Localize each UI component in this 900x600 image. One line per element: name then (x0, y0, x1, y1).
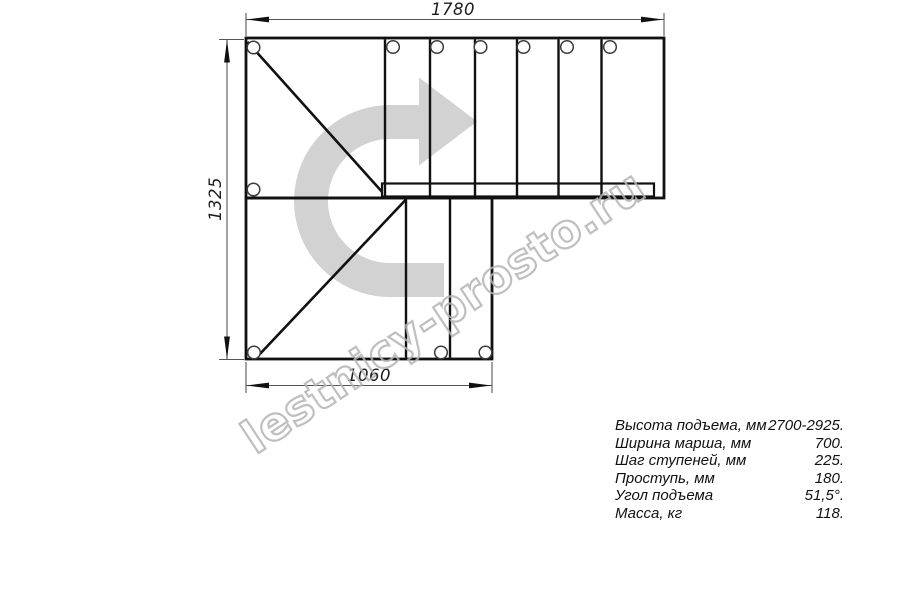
dimension-arrow-icon (641, 17, 664, 23)
dimension-arrow-icon (469, 383, 492, 389)
hole-marker (431, 41, 444, 54)
spec-label: Угол подъема (615, 487, 713, 505)
spec-label: Шаг ступеней, мм (615, 452, 746, 470)
spec-row: Угол подъема 51,5°. (615, 487, 844, 505)
spec-label: Высота подъема, мм (615, 417, 767, 435)
hole-marker (479, 346, 492, 359)
spec-value: 180. (815, 470, 844, 488)
spec-row: Масса, кг 118. (615, 505, 844, 523)
hole-marker (474, 41, 487, 54)
direction-arrow-head (419, 78, 477, 166)
stair-drawing-page: 1780 1325 1060 lestnicy-prosto.ru Высота… (0, 0, 900, 600)
spec-row: Шаг ступеней, мм 225. (615, 452, 844, 470)
spec-label: Масса, кг (615, 505, 682, 523)
specs-table: Высота подъема, мм 2700-2925. Ширина мар… (615, 417, 844, 522)
dimension-arrow-icon (247, 383, 270, 389)
dimension-arrow-icon (224, 337, 230, 360)
dimension-arrow-icon (247, 17, 270, 23)
spec-value: 118. (816, 505, 844, 523)
spec-row: Высота подъема, мм 2700-2925. (615, 417, 844, 435)
spec-row: Проступь, мм 180. (615, 470, 844, 488)
hole-marker (561, 41, 574, 54)
dimension-left: 1325 (206, 40, 244, 360)
spec-label: Проступь, мм (615, 470, 715, 488)
hole-marker (387, 41, 400, 54)
dimension-left-value: 1325 (206, 177, 225, 221)
hole-marker (247, 183, 260, 196)
spec-value: 2700-2925. (768, 417, 844, 435)
spec-value: 700. (815, 435, 844, 453)
spec-value: 51,5°. (805, 487, 844, 505)
hole-marker (604, 41, 617, 54)
dimension-top: 1780 (246, 0, 664, 36)
hole-marker (247, 41, 260, 54)
dimension-top-value: 1780 (431, 0, 475, 19)
dimension-arrow-icon (224, 40, 230, 63)
stair-direction-arrow-icon (311, 78, 477, 281)
spec-label: Ширина марша, мм (615, 435, 751, 453)
hole-marker (248, 346, 261, 359)
hole-marker (517, 41, 530, 54)
spec-value: 225. (815, 452, 844, 470)
spec-row: Ширина марша, мм 700. (615, 435, 844, 453)
